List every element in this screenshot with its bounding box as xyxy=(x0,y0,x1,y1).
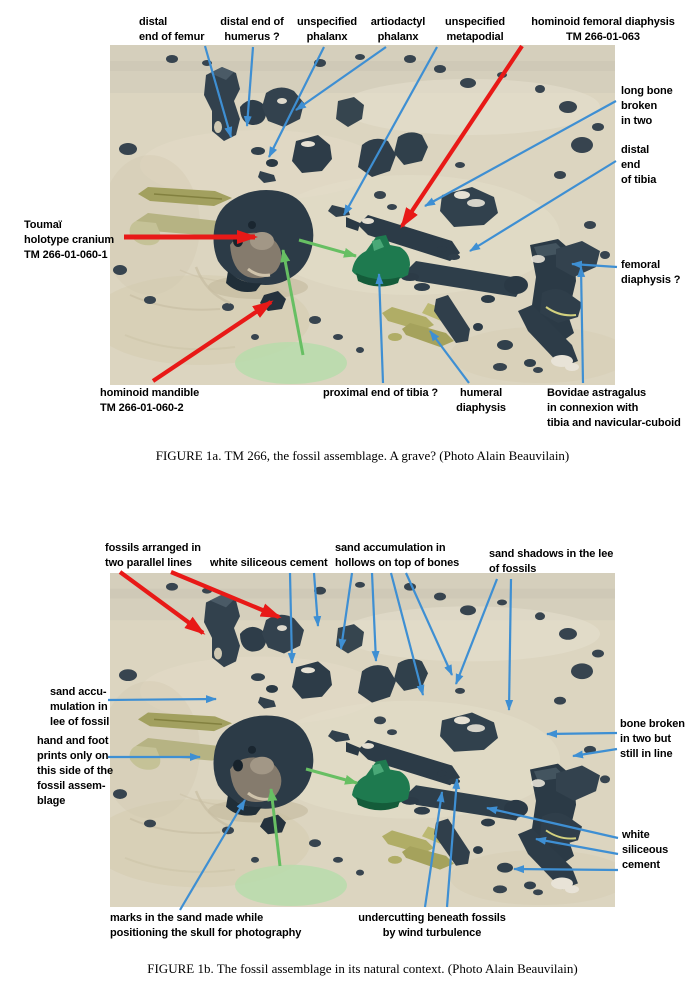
label-distal-end-of-femur: distal end of femur xyxy=(139,15,204,45)
figure-1a-caption: FIGURE 1a. TM 266, the fossil assemblage… xyxy=(110,448,615,464)
fossil-photo-1a xyxy=(110,45,615,385)
label-sand-shadows-lee: sand shadows in the lee of fossils xyxy=(489,547,613,577)
label-undercutting-wind-turbulence: undercutting beneath fossils by wind tur… xyxy=(347,911,517,941)
label-artiodactyl-phalanx: artiodactyl phalanx xyxy=(366,15,430,45)
label-bovidae-astragalus: Bovidae astragalus in connexion with tib… xyxy=(547,386,681,431)
label-white-siliceous-cement-top: white siliceous cement xyxy=(210,556,328,571)
label-marks-in-sand: marks in the sand made while positioning… xyxy=(110,911,301,941)
figure-1b-caption: FIGURE 1b. The fossil assemblage in its … xyxy=(110,961,615,977)
label-unspecified-phalanx: unspecified phalanx xyxy=(294,15,360,45)
label-sand-accumulation-lee-of-fossil: sand accu- mulation in lee of fossil xyxy=(50,685,109,730)
label-hand-and-foot-prints: hand and foot prints only on this side o… xyxy=(37,734,113,809)
label-toumai-holotype-cranium: Toumaï holotype cranium TM 266-01-060-1 xyxy=(24,218,114,263)
label-sand-accumulation-hollows: sand accumulation in hollows on top of b… xyxy=(335,541,459,571)
label-humeral-diaphysis: humeral diaphysis xyxy=(450,386,512,416)
label-bone-broken-still-in-line: bone broken in two but still in line xyxy=(620,717,685,762)
fossil-photo-1b xyxy=(110,573,615,907)
label-distal-end-of-tibia: distal end of tibia xyxy=(621,143,656,188)
paper-figure-page: distal end of femur distal end of humeru… xyxy=(0,0,700,999)
label-fossils-two-parallel-lines: fossils arranged in two parallel lines xyxy=(105,541,201,571)
label-hominoid-mandible: hominoid mandible TM 266-01-060-2 xyxy=(100,386,199,416)
label-white-siliceous-cement-right: white siliceous cement xyxy=(622,828,668,873)
label-proximal-end-of-tibia: proximal end of tibia ? xyxy=(323,386,438,401)
label-hominoid-femoral-diaphysis: hominoid femoral diaphysis TM 266-01-063 xyxy=(528,15,678,45)
label-long-bone-broken: long bone broken in two xyxy=(621,84,673,129)
label-femoral-diaphysis: femoral diaphysis ? xyxy=(621,258,680,288)
label-unspecified-metapodial: unspecified metapodial xyxy=(441,15,509,45)
label-distal-end-of-humerus: distal end of humerus ? xyxy=(219,15,285,45)
